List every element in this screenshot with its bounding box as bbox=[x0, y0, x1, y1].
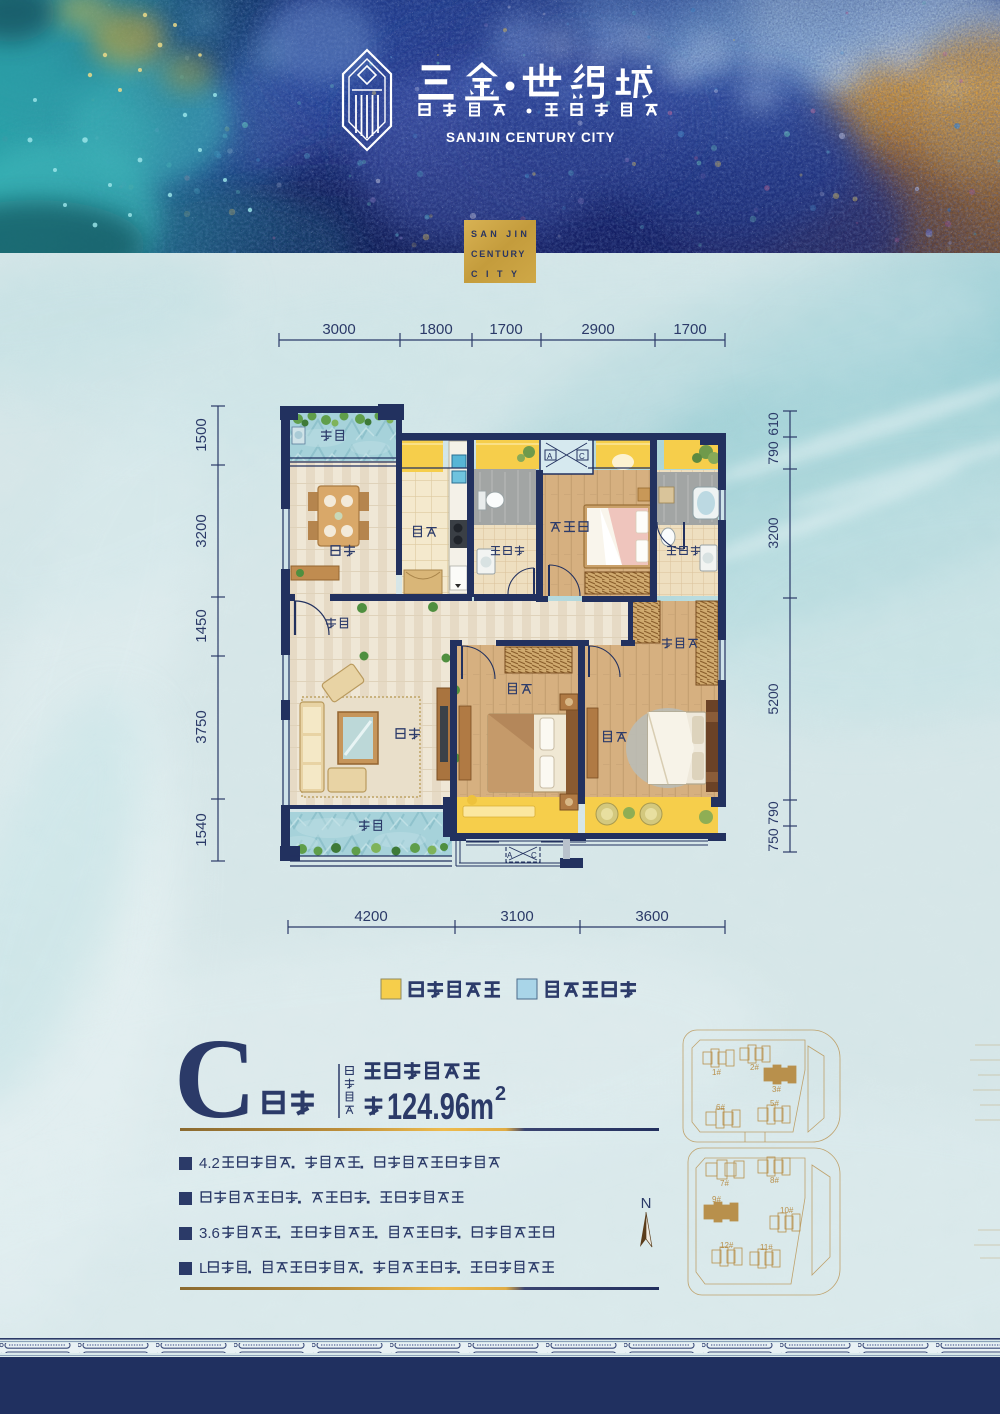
svg-text:3.6: 3.6 bbox=[199, 1225, 220, 1242]
svg-text:C: C bbox=[531, 851, 537, 860]
svg-text:5200: 5200 bbox=[765, 683, 781, 714]
svg-text:2: 2 bbox=[495, 1083, 506, 1105]
svg-text:9#: 9# bbox=[712, 1195, 721, 1204]
svg-text:N: N bbox=[641, 1195, 652, 1212]
svg-text:A: A bbox=[547, 452, 553, 461]
svg-text:12#: 12# bbox=[720, 1241, 734, 1250]
svg-text:790: 790 bbox=[765, 801, 781, 825]
svg-text:3600: 3600 bbox=[635, 908, 668, 925]
svg-text:790: 790 bbox=[765, 441, 781, 465]
svg-text:A: A bbox=[507, 851, 513, 860]
svg-text:L: L bbox=[199, 1260, 207, 1277]
svg-text:3200: 3200 bbox=[193, 514, 210, 547]
svg-text:3200: 3200 bbox=[765, 517, 781, 548]
svg-text:3000: 3000 bbox=[322, 321, 355, 338]
svg-text:11#: 11# bbox=[760, 1243, 773, 1252]
svg-text:1450: 1450 bbox=[193, 609, 210, 642]
svg-text:3100: 3100 bbox=[500, 908, 533, 925]
svg-text:1800: 1800 bbox=[419, 321, 452, 338]
svg-text:8#: 8# bbox=[770, 1176, 779, 1185]
svg-text:3750: 3750 bbox=[193, 710, 210, 743]
svg-text:6#: 6# bbox=[716, 1103, 725, 1112]
svg-text:10#: 10# bbox=[780, 1206, 794, 1215]
svg-text:7#: 7# bbox=[720, 1179, 729, 1188]
svg-text:1540: 1540 bbox=[193, 813, 210, 846]
svg-text:2900: 2900 bbox=[581, 321, 614, 338]
svg-text:C: C bbox=[579, 452, 585, 461]
svg-text:3#: 3# bbox=[772, 1085, 781, 1094]
svg-text:2#: 2# bbox=[750, 1063, 759, 1072]
svg-text:SANJIN CENTURY CITY: SANJIN CENTURY CITY bbox=[446, 130, 615, 145]
svg-text:5#: 5# bbox=[770, 1099, 779, 1108]
svg-text:4.2: 4.2 bbox=[199, 1155, 220, 1172]
svg-text:1500: 1500 bbox=[193, 418, 210, 451]
svg-text:610: 610 bbox=[765, 412, 781, 436]
svg-text:CENTURY: CENTURY bbox=[471, 249, 526, 259]
svg-text:124.96m: 124.96m bbox=[387, 1086, 494, 1127]
svg-text:SAN JIN: SAN JIN bbox=[471, 229, 530, 239]
svg-text:CITY: CITY bbox=[471, 269, 526, 279]
svg-text:1700: 1700 bbox=[673, 321, 706, 338]
svg-text:4200: 4200 bbox=[354, 908, 387, 925]
svg-text:1#: 1# bbox=[712, 1068, 721, 1077]
svg-text:1700: 1700 bbox=[489, 321, 522, 338]
svg-text:750: 750 bbox=[765, 828, 781, 852]
svg-text:C: C bbox=[174, 1020, 256, 1142]
